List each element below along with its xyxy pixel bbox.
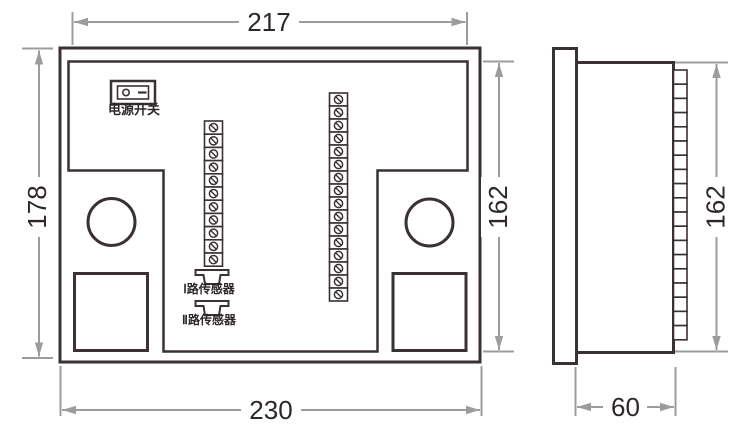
screw-terminal-icon [205, 187, 223, 200]
side-view [554, 49, 688, 364]
dim-right-height: 162 [481, 62, 515, 352]
terminal-block-side-icon [674, 311, 688, 325]
terminal-block-side-icon [674, 98, 688, 112]
terminal-block-side-icon [674, 326, 688, 340]
screw-terminal-icon [205, 227, 223, 240]
side-terminal-comb [674, 70, 688, 340]
terminal-block-side-icon [674, 283, 688, 297]
screw-terminal-icon [330, 158, 348, 171]
terminal-block-side-icon [674, 269, 688, 283]
screw-terminal-icon [330, 236, 348, 249]
screw-terminal-icon [330, 145, 348, 158]
screw-terminal-icon [330, 288, 348, 301]
screw-terminal-icon [205, 213, 223, 226]
screw-terminal-icon [205, 121, 223, 134]
terminal-block-side-icon [674, 127, 688, 141]
screw-terminal-icon [205, 240, 223, 253]
terminal-strip-left [205, 121, 223, 266]
terminal-block-side-icon [674, 169, 688, 183]
terminal-block-side-icon [674, 198, 688, 212]
dim-bottom-width-value: 230 [249, 395, 292, 425]
terminal-block-side-icon [674, 141, 688, 155]
side-body-outline [577, 63, 674, 353]
screw-terminal-icon [330, 210, 348, 223]
screw-terminal-icon [330, 249, 348, 262]
screw-terminal-icon [330, 197, 348, 210]
screw-terminal-icon [330, 223, 348, 236]
front-view: 电源开关 Ⅰ路传感器 Ⅱ路传感器 [60, 48, 480, 362]
dim-side-depth: 60 [576, 367, 676, 424]
terminal-strip-right [330, 93, 348, 301]
terminal-block-side-icon [674, 155, 688, 169]
dim-left-height-value: 178 [22, 185, 52, 228]
screw-terminal-icon [205, 147, 223, 160]
terminal-block-side-icon [674, 113, 688, 127]
screw-terminal-icon [330, 262, 348, 275]
dim-side-height-value: 162 [701, 185, 731, 228]
screw-terminal-icon [330, 119, 348, 132]
terminal-block-side-icon [674, 70, 688, 84]
screw-terminal-icon [205, 174, 223, 187]
screw-terminal-icon [330, 275, 348, 288]
screw-terminal-icon [330, 171, 348, 184]
dim-right-height-value: 162 [483, 185, 513, 228]
screw-terminal-icon [330, 132, 348, 145]
terminal-block-side-icon [674, 84, 688, 98]
power-switch-icon [111, 81, 155, 104]
screw-terminal-icon [205, 134, 223, 147]
dim-bottom-width: 230 [61, 366, 482, 427]
dim-left-height: 178 [20, 49, 54, 359]
screw-terminal-icon [330, 106, 348, 119]
terminal-block-side-icon [674, 240, 688, 254]
dim-side-depth-value: 60 [611, 392, 640, 422]
screw-terminal-icon [205, 161, 223, 174]
side-front-bezel [554, 49, 577, 364]
dim-top-width: 217 [73, 5, 468, 45]
screw-terminal-icon [330, 184, 348, 197]
dim-top-width-value: 217 [247, 7, 290, 37]
screw-terminal-icon [205, 253, 223, 266]
drawing-canvas: 电源开关 Ⅰ路传感器 Ⅱ路传感器 217 [0, 0, 750, 432]
terminal-block-side-icon [674, 212, 688, 226]
screw-terminal-icon [330, 93, 348, 106]
terminal-block-side-icon [674, 297, 688, 311]
terminal-block-side-icon [674, 226, 688, 240]
terminal-block-side-icon [674, 184, 688, 198]
screw-terminal-icon [205, 200, 223, 213]
power-switch-label: 电源开关 [108, 102, 160, 117]
terminal-block-side-icon [674, 255, 688, 269]
dimension-drawing: 电源开关 Ⅰ路传感器 Ⅱ路传感器 217 [0, 0, 750, 432]
sensor-channel-2-label: Ⅱ路传感器 [182, 312, 237, 327]
sensor-channel-1-label: Ⅰ路传感器 [183, 281, 236, 296]
